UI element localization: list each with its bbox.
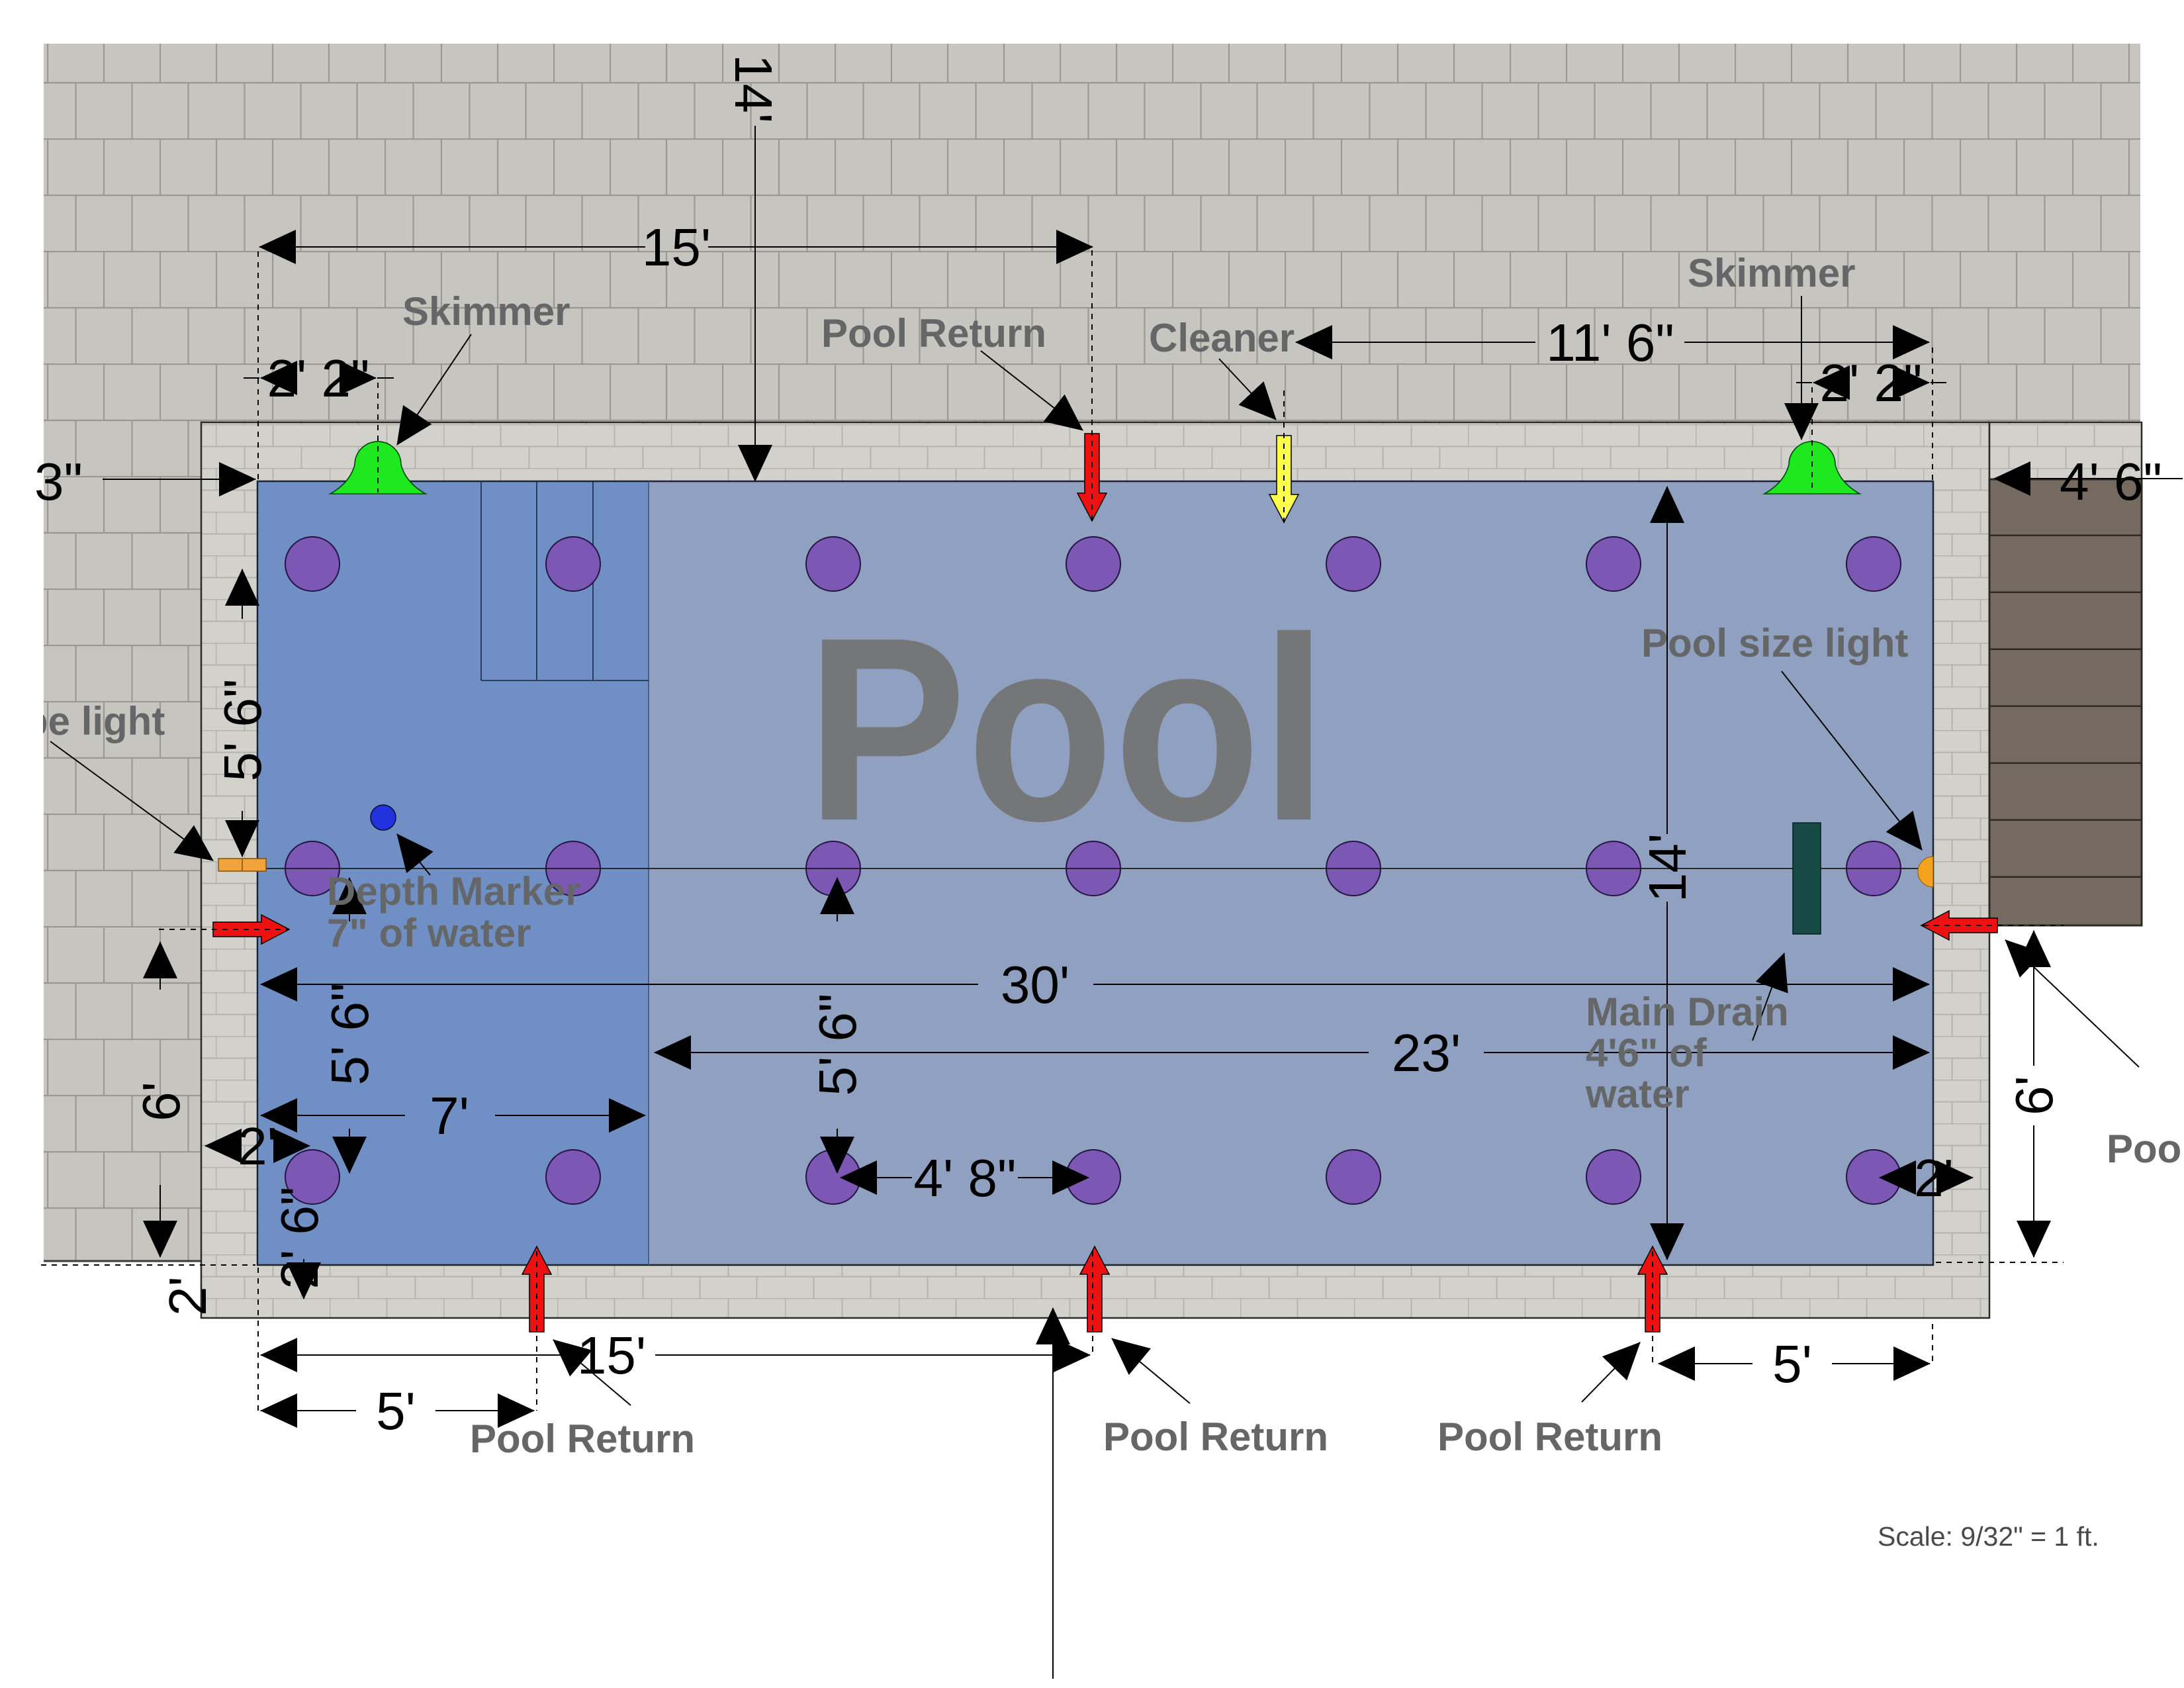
svg-text:pe light: pe light: [24, 699, 165, 743]
svg-text:5': 5': [1772, 1335, 1812, 1393]
svg-text:Scale: 9/32" = 1 ft.: Scale: 9/32" = 1 ft.: [1878, 1521, 2099, 1552]
svg-text:6': 6': [2005, 1076, 2064, 1115]
svg-text:30': 30': [1001, 955, 1069, 1014]
svg-text:23': 23': [1392, 1023, 1461, 1082]
svg-text:2': 2': [1914, 1149, 1954, 1207]
svg-text:Pool Return: Pool Return: [1103, 1415, 1328, 1459]
svg-text:Cleaner: Cleaner: [1149, 316, 1295, 360]
svg-text:3": 3": [34, 452, 83, 511]
svg-text:Pool Return: Pool Return: [470, 1417, 695, 1461]
svg-text:5': 5': [376, 1382, 416, 1440]
svg-text:15': 15': [642, 218, 711, 277]
svg-text:Pool Return: Pool Return: [1437, 1415, 1662, 1459]
svg-text:Skimmer: Skimmer: [402, 289, 570, 334]
svg-text:2' 2": 2' 2": [267, 349, 370, 408]
svg-text:2': 2': [158, 1276, 217, 1316]
svg-text:Pool: Pool: [806, 583, 1328, 875]
svg-text:Main Drain: Main Drain: [1586, 990, 1789, 1034]
svg-text:4' 6": 4' 6": [2060, 452, 2162, 511]
svg-text:Pool size light: Pool size light: [1641, 621, 1908, 665]
svg-text:6': 6': [132, 1082, 191, 1121]
svg-text:Pool Return: Pool Return: [821, 311, 1046, 355]
svg-text:7': 7': [430, 1086, 469, 1145]
svg-text:14': 14': [1638, 833, 1697, 902]
svg-text:7" of water: 7" of water: [327, 911, 531, 955]
svg-text:4' 8": 4' 8": [914, 1149, 1017, 1207]
svg-text:4'6" of: 4'6" of: [1586, 1031, 1707, 1075]
svg-text:5' 6": 5' 6": [808, 994, 867, 1096]
svg-text:5' 6": 5' 6": [213, 679, 272, 782]
svg-text:15': 15': [577, 1326, 646, 1385]
svg-text:2' 2": 2' 2": [1820, 353, 1923, 412]
svg-text:2' 6": 2' 6": [270, 1187, 329, 1289]
svg-text:Depth Marker: Depth Marker: [327, 869, 580, 914]
svg-text:5' 6": 5' 6": [320, 983, 379, 1086]
svg-text:Skimmer: Skimmer: [1688, 251, 1855, 295]
svg-text:2': 2': [238, 1117, 277, 1176]
svg-text:water: water: [1585, 1072, 1690, 1116]
svg-text:11' 6": 11' 6": [1546, 313, 1674, 372]
svg-text:14': 14': [724, 54, 783, 123]
svg-text:Pool Return: Pool Return: [2107, 1127, 2184, 1171]
